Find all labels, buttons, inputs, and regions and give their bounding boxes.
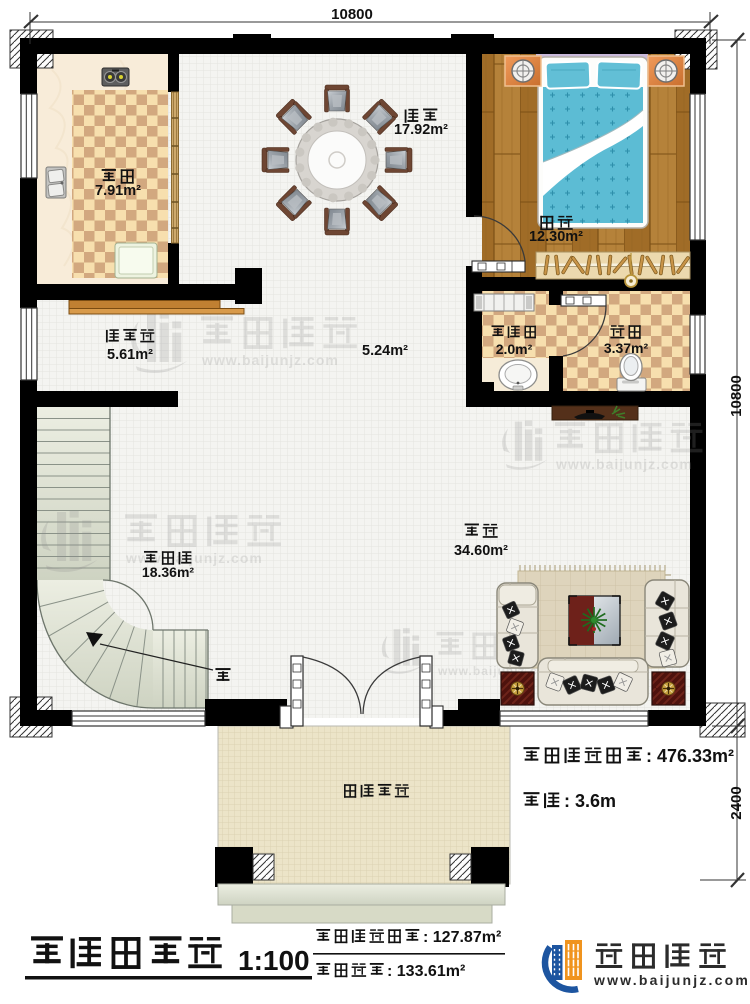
svg-text:7.91m²: 7.91m²	[95, 183, 141, 199]
svg-text:5.61m²: 5.61m²	[107, 347, 153, 363]
svg-text:www.baijunjz.com: www.baijunjz.com	[593, 972, 750, 988]
svg-text:: 3.6m: : 3.6m	[564, 791, 616, 811]
svg-text:18.36m²: 18.36m²	[142, 564, 194, 580]
svg-text:2400: 2400	[728, 786, 745, 819]
svg-text:10800: 10800	[331, 6, 373, 23]
svg-text:2.0m²: 2.0m²	[496, 341, 533, 357]
svg-text:10800: 10800	[728, 375, 745, 417]
svg-text:17.92m²: 17.92m²	[394, 122, 448, 138]
svg-text:: 133.61m²: : 133.61m²	[387, 963, 465, 980]
svg-text:1:100: 1:100	[238, 945, 310, 976]
svg-text:www.baijunjz.com: www.baijunjz.com	[555, 456, 693, 472]
svg-text:: 476.33m²: : 476.33m²	[646, 746, 734, 766]
svg-text:12.30m²: 12.30m²	[529, 229, 583, 245]
svg-text:3.37m²: 3.37m²	[604, 340, 649, 356]
svg-text:: 127.87m²: : 127.87m²	[423, 929, 501, 946]
svg-text:5.24m²: 5.24m²	[362, 343, 408, 359]
svg-text:www.baijunjz.com: www.baijunjz.com	[201, 352, 339, 368]
svg-text:34.60m²: 34.60m²	[454, 543, 508, 559]
